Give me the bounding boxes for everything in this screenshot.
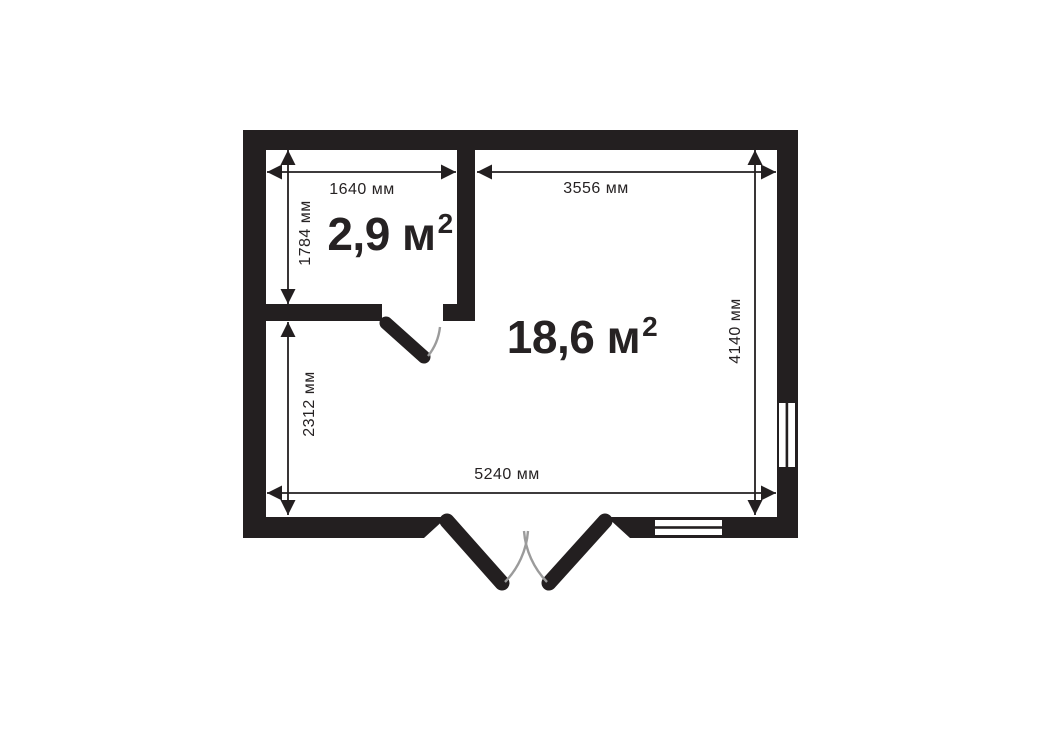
dimension-small-depth [281, 150, 296, 304]
arrowhead-left-icon [267, 486, 282, 501]
arrowhead-up-icon [748, 150, 763, 165]
floor-plan-drawing [0, 0, 1044, 745]
window-right-wall [779, 403, 795, 467]
arrowhead-down-icon [281, 289, 296, 304]
dimension-small-width [267, 165, 456, 180]
arrowhead-down-icon [281, 500, 296, 515]
interior-door [386, 323, 440, 357]
arrowhead-right-icon [761, 486, 776, 501]
wall-interior-foot [443, 304, 475, 321]
arrowhead-down-icon [748, 500, 763, 515]
room-main-area-exponent: 2 [642, 311, 657, 343]
arrowhead-left-icon [267, 165, 282, 180]
wall-right [777, 130, 798, 538]
dimension-main-depth [748, 150, 763, 515]
dimension-label-small-depth: 1784 мм [297, 200, 315, 266]
window-bottom-divider [655, 526, 722, 529]
wall-left [243, 130, 266, 538]
dimension-lower-depth [281, 322, 296, 515]
dimension-label-small-width: 1640 мм [329, 181, 395, 199]
floor-plan-canvas: 1640 мм 3556 мм 1784 мм 2312 мм 4140 мм … [0, 0, 1044, 745]
room-small-area-label: 2,9 м2 [327, 207, 452, 261]
room-small-area-exponent: 2 [438, 208, 453, 240]
dimension-label-main-width: 3556 мм [563, 180, 629, 198]
arrowhead-up-icon [281, 150, 296, 165]
arrowhead-left-icon [477, 165, 492, 180]
arrowhead-right-icon [441, 165, 456, 180]
wall-bottom-left-segment [243, 517, 447, 538]
dimension-total-width [267, 486, 776, 501]
wall-interior-horizontal [266, 304, 382, 321]
interior-door-swing-arc [428, 327, 440, 356]
window-bottom-wall [655, 520, 722, 535]
wall-top [243, 130, 798, 150]
entrance-door-leaf-left [447, 521, 502, 583]
interior-door-leaf [386, 323, 424, 357]
window-right-divider [786, 403, 789, 467]
dimension-label-lower-depth: 2312 мм [301, 371, 319, 437]
room-small-area-value: 2,9 м [327, 208, 435, 260]
room-main-area-value: 18,6 м [507, 311, 640, 363]
dimension-label-main-depth: 4140 мм [727, 298, 745, 364]
entrance-double-door [447, 521, 605, 583]
dimension-label-total-width: 5240 мм [474, 466, 540, 484]
dimension-main-width [477, 165, 776, 180]
entrance-door-leaf-right [549, 521, 605, 583]
arrowhead-up-icon [281, 322, 296, 337]
arrowhead-right-icon [761, 165, 776, 180]
wall-interior-vertical [457, 150, 475, 321]
room-main-area-label: 18,6 м2 [507, 310, 657, 364]
